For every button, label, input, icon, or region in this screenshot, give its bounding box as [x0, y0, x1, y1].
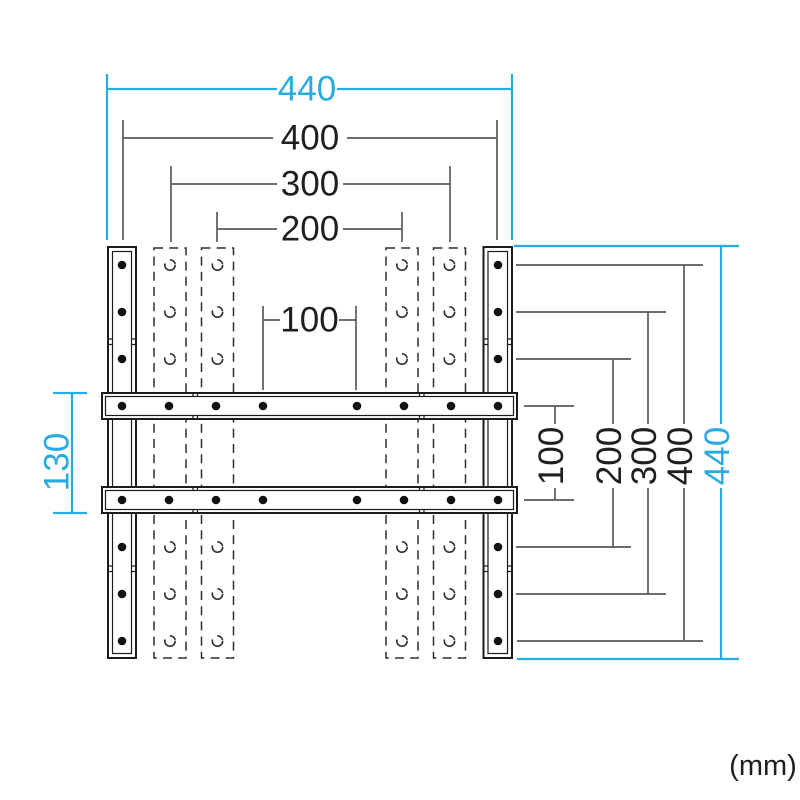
- dim-label-top-300: 300: [281, 165, 339, 204]
- dim-label-right-300: 300: [625, 427, 664, 485]
- dim-label-right-100: 100: [532, 427, 571, 485]
- dim-label-left-130: 130: [38, 433, 77, 491]
- dim-label-right-400: 400: [661, 427, 700, 485]
- unit-label: (mm): [729, 750, 797, 782]
- dim-label-mid-100: 100: [280, 301, 338, 340]
- dim-middle-width-100: 100: [263, 301, 356, 391]
- vesa-bracket-dimension-diagram: 440 400 300 200 100 130: [0, 0, 800, 800]
- dim-label-right-440: 440: [698, 427, 737, 485]
- hidden-rail-outline: [202, 248, 234, 658]
- hidden-rail-outline: [434, 248, 466, 658]
- dim-label-top-400: 400: [281, 119, 339, 158]
- diagram-page: 440 400 300 200 100 130: [0, 0, 800, 800]
- hidden-rail-outline: [386, 248, 418, 658]
- dim-label-top-200: 200: [281, 210, 339, 249]
- dim-top-width-200: 200: [217, 210, 402, 249]
- dimension-annotations: 440 400 300 200 100 130: [38, 70, 740, 660]
- dim-label-right-200: 200: [590, 427, 629, 485]
- dim-label-top-440: 440: [278, 70, 336, 109]
- dim-left-height-130: 130: [38, 393, 88, 513]
- hidden-rail-outline: [154, 248, 186, 658]
